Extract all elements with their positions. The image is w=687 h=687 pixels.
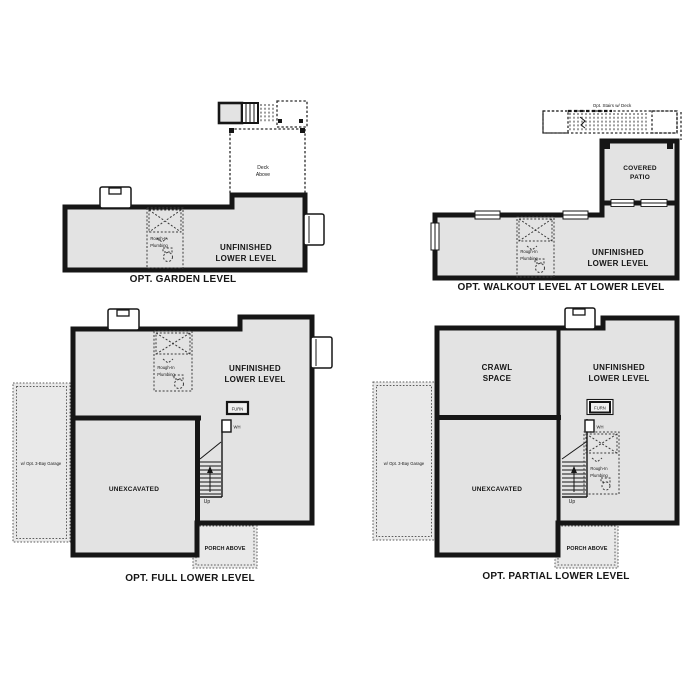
window-well-icon	[100, 187, 131, 208]
garage-label: w/ Opt. 3-Bay Garage	[21, 461, 62, 466]
plan-title: OPT. GARDEN LEVEL	[130, 274, 237, 285]
opt-deck-stairs-icon	[543, 111, 681, 140]
deck-post-icon	[278, 119, 282, 123]
garden-level-plan: Deck Above Rough-In Plumbing UNFINISHED …	[65, 101, 324, 285]
deck-post-icon	[229, 128, 234, 133]
unfinished-lower-level-label: UNFINISHED	[220, 243, 272, 252]
wh-label: WH	[234, 425, 241, 430]
furn-label: FURN	[594, 406, 606, 411]
furnace-box: FURN	[227, 402, 248, 414]
walkout-level-plan: Opt. Stairs w/ Deck	[431, 103, 681, 293]
window-well-icon	[304, 214, 324, 245]
opt-garage-area: w/ Opt. 3-Bay Garage	[373, 382, 435, 540]
window-well-icon	[565, 308, 595, 329]
wh-label: WH	[597, 425, 604, 430]
rough-in-label: Rough-In	[157, 365, 175, 370]
window-icon	[431, 223, 439, 250]
svg-text:SPACE: SPACE	[483, 374, 512, 383]
opt-garage-area: w/ Opt. 3-Bay Garage	[13, 383, 70, 542]
covered-patio-area	[602, 141, 677, 203]
svg-text:LOWER LEVEL: LOWER LEVEL	[224, 375, 285, 384]
svg-text:Plumbing: Plumbing	[157, 372, 175, 377]
floor-plan-canvas: Deck Above Rough-In Plumbing UNFINISHED …	[0, 0, 687, 687]
plan-title: OPT. FULL LOWER LEVEL	[125, 573, 255, 584]
floor-plan-sheet: Deck Above Rough-In Plumbing UNFINISHED …	[0, 0, 687, 687]
deck-post-icon	[299, 119, 303, 123]
deck-post-icon	[300, 128, 305, 133]
plan-title: OPT. WALKOUT LEVEL AT LOWER LEVEL	[458, 282, 665, 293]
svg-text:PATIO: PATIO	[630, 174, 650, 181]
porch-above-label: PORCH ABOVE	[567, 546, 608, 552]
patio-post-icon	[604, 143, 610, 149]
unfinished-lower-level-label: UNFINISHED	[229, 364, 281, 373]
covered-patio-label: COVERED	[623, 165, 657, 172]
window-well-icon	[108, 309, 139, 330]
svg-text:LOWER LEVEL: LOWER LEVEL	[588, 374, 649, 383]
unexcavated-label: UNEXCAVATED	[109, 486, 159, 493]
svg-text:Plumbing: Plumbing	[590, 473, 608, 478]
svg-text:LOWER LEVEL: LOWER LEVEL	[215, 254, 276, 263]
window-well-icon	[311, 337, 332, 368]
partial-lower-level-plan: w/ Opt. 3-Bay Garage PORCH ABOVE Up FURN	[373, 308, 677, 582]
unfinished-lower-level-label: UNFINISHED	[593, 363, 645, 372]
unfinished-lower-level-label: UNFINISHED	[592, 248, 644, 257]
opt-stairs-label: Opt. Stairs w/ Deck	[593, 103, 632, 108]
up-label: Up	[569, 499, 576, 505]
unexcavated-label: UNEXCAVATED	[472, 486, 522, 493]
full-floor-area	[73, 317, 312, 555]
svg-text:Plumbing: Plumbing	[150, 243, 168, 248]
deck-above-label: Deck	[257, 165, 269, 171]
svg-text:LOWER LEVEL: LOWER LEVEL	[587, 259, 648, 268]
up-label: Up	[204, 499, 211, 505]
window-icon	[563, 211, 588, 219]
svg-text:Plumbing: Plumbing	[520, 256, 538, 261]
full-lower-level-plan: w/ Opt. 3-Bay Garage PORCH ABOVE Up FURN	[13, 309, 332, 584]
furn-label: FURN	[232, 407, 244, 412]
rough-in-label: Rough-In	[590, 466, 608, 471]
porch-above-area: PORCH ABOVE	[555, 523, 618, 568]
garage-label: w/ Opt. 3-Bay Garage	[384, 461, 425, 466]
rough-in-label: Rough-In	[150, 236, 168, 241]
patio-post-icon	[667, 143, 673, 149]
svg-text:Above: Above	[256, 172, 270, 178]
porch-above-area: PORCH ABOVE	[193, 523, 257, 568]
deck-stairs-icon	[219, 103, 273, 123]
plan-title: OPT. PARTIAL LOWER LEVEL	[482, 571, 629, 582]
window-icon	[475, 211, 500, 219]
furnace-box: FURN	[587, 400, 613, 415]
crawl-space-label: CRAWL	[482, 363, 513, 372]
rough-in-label: Rough-In	[520, 249, 538, 254]
porch-above-label: PORCH ABOVE	[205, 546, 246, 552]
